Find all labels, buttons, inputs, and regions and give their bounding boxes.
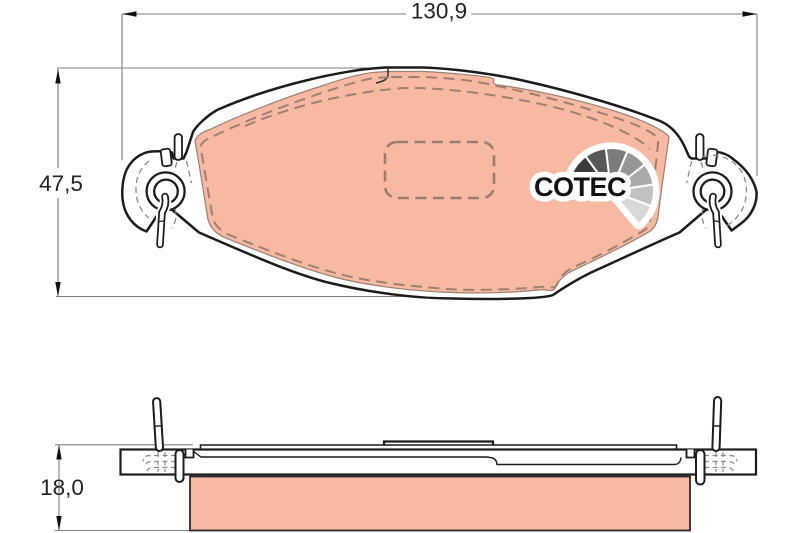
svg-text:COTEC: COTEC (534, 172, 626, 202)
svg-text:18,0: 18,0 (40, 475, 84, 500)
svg-text:130,9: 130,9 (411, 0, 467, 24)
svg-text:47,5: 47,5 (39, 171, 83, 196)
